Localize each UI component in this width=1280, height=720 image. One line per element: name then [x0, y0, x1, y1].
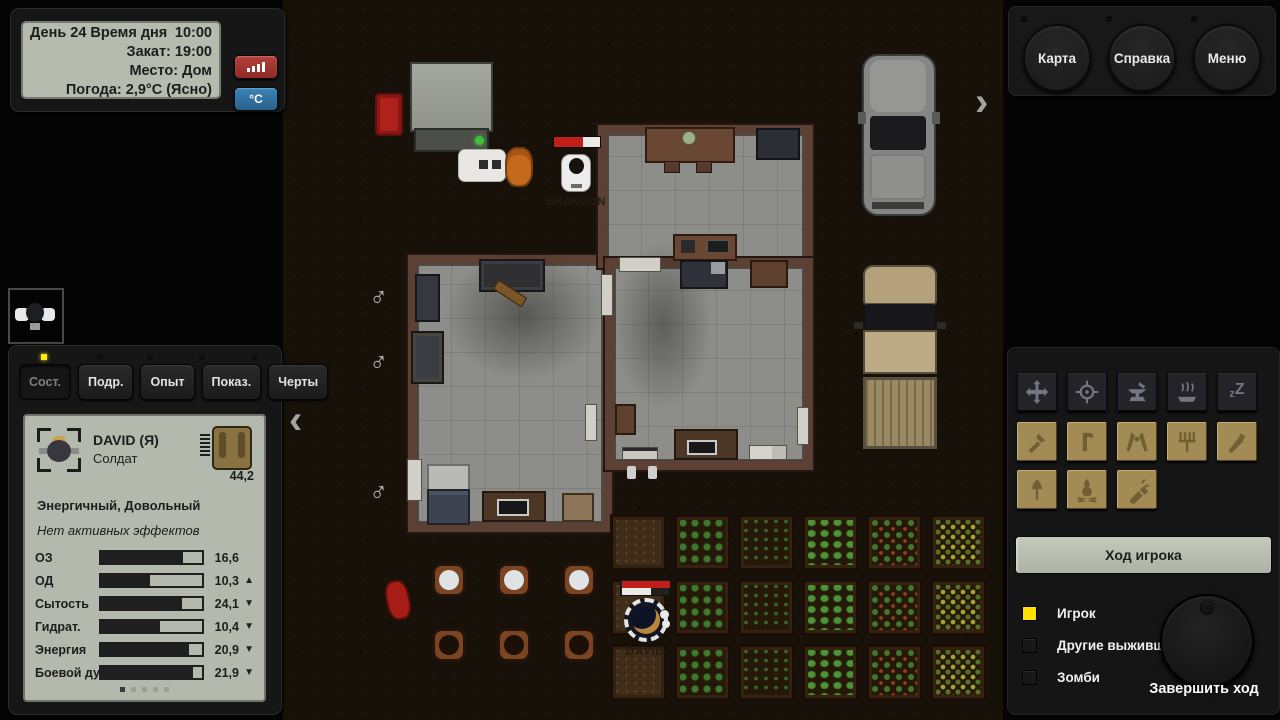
crosshair-icon [1073, 378, 1101, 406]
mood-text: Энергичный, Довольный [37, 498, 254, 513]
portrait-sprite [47, 440, 71, 462]
page-dots[interactable] [25, 687, 264, 692]
character-portrait[interactable] [37, 428, 81, 472]
pan-left-arrow[interactable]: ‹ [289, 402, 302, 438]
panel-cell [492, 160, 501, 169]
crop-plot-dirt[interactable] [610, 514, 667, 571]
sprite-part [26, 303, 44, 322]
pot-watered[interactable] [562, 563, 596, 597]
crop-plot-berry[interactable] [866, 644, 923, 701]
chair[interactable] [696, 161, 712, 173]
legend-player: Игрок [1022, 606, 1096, 621]
end-turn-dial[interactable] [1160, 594, 1254, 688]
signal-bars-icon [247, 62, 265, 72]
effects-text: Нет активных эффектов [37, 523, 254, 538]
menu-indicator [1106, 16, 1112, 22]
crop-plot-bush[interactable] [674, 514, 731, 571]
tab-indicators[interactable]: Показ. [202, 364, 262, 400]
celsius-label: °C [249, 92, 262, 106]
pot-empty[interactable] [432, 628, 466, 662]
male-symbol[interactable]: ♂ [367, 476, 391, 509]
tab-experience[interactable]: Опыт [140, 364, 194, 400]
character-role: Солдат [93, 451, 159, 466]
crop-plot-bush[interactable] [674, 579, 731, 636]
crop-plot-leafy[interactable] [802, 644, 859, 701]
action-panel: zZ [1007, 347, 1280, 715]
pliers-icon [1123, 428, 1151, 456]
sink[interactable] [749, 445, 787, 460]
signal-button[interactable] [234, 55, 278, 79]
counter-item [707, 240, 729, 253]
menu-indicator [1021, 16, 1027, 22]
pitchfork-button[interactable] [1167, 422, 1207, 461]
forge-button[interactable] [1117, 372, 1157, 411]
stat-row-hydration: Гидрат. 10,4 ▼ [35, 615, 254, 638]
door[interactable] [601, 274, 613, 316]
male-symbol[interactable]: ♂ [367, 346, 391, 379]
weight-ticks [200, 434, 210, 456]
crop-plot-corn[interactable] [930, 514, 987, 571]
crop-plot-berry[interactable] [866, 579, 923, 636]
generator[interactable] [410, 62, 493, 132]
knife-button[interactable] [1217, 422, 1257, 461]
chair[interactable] [664, 161, 680, 173]
character-name: DAVID (Я) [93, 432, 159, 448]
panel-cell [479, 160, 488, 169]
portrait-sprite [71, 448, 79, 454]
help-button[interactable]: Справка [1108, 24, 1176, 92]
generator-light [475, 136, 484, 145]
brandon-name-label: BRANDON [541, 196, 611, 208]
tab-indicator [97, 354, 103, 360]
faucet[interactable] [627, 466, 636, 479]
weather-label: Погода: 2,9°C (Ясно) [30, 81, 212, 100]
bench[interactable] [622, 447, 658, 460]
bed-pillow[interactable] [427, 464, 470, 491]
legend-survivors: Другие выжившие [1022, 638, 1180, 653]
axe-icon [1023, 428, 1051, 456]
cook-button[interactable] [1167, 372, 1207, 411]
pliers-button[interactable] [1117, 422, 1157, 461]
fridge[interactable] [756, 128, 800, 160]
david-health-bar [620, 579, 670, 596]
shovel-icon [1023, 476, 1051, 504]
bed[interactable] [427, 489, 470, 525]
crop-plot-corn[interactable] [930, 644, 987, 701]
crowbar-icon [1073, 428, 1101, 456]
temperature-button[interactable]: °C [234, 87, 278, 111]
flashlight-button[interactable] [1117, 470, 1157, 509]
armchair[interactable] [750, 260, 788, 288]
tab-state[interactable]: Сост. [19, 364, 71, 400]
game-screen: ♂ ♂ ♂ [0, 0, 1280, 720]
survivors-color-swatch [1022, 638, 1037, 653]
pan-right-arrow[interactable]: › [975, 84, 988, 120]
sleep-zz-icon: zZ [1229, 382, 1244, 401]
player-color-swatch [1022, 606, 1037, 621]
shovel-button[interactable] [1017, 470, 1057, 509]
animal-fox[interactable] [505, 147, 533, 187]
crop-plot-sprout[interactable] [738, 579, 795, 636]
sleep-button[interactable]: zZ [1217, 372, 1257, 411]
map-button[interactable]: Карта [1023, 24, 1091, 92]
tab-traits[interactable]: Черты [268, 364, 328, 400]
clock-value: 10:00 [175, 24, 212, 43]
cabinet[interactable] [615, 404, 636, 435]
counter-item [681, 240, 695, 253]
door[interactable] [585, 404, 597, 441]
turn-status-bar: Ход игрока [1015, 536, 1272, 574]
portrait-sprite [39, 448, 47, 454]
wardrobe[interactable] [411, 331, 444, 384]
sprite-part [30, 323, 40, 330]
world-map[interactable]: ♂ ♂ ♂ [283, 0, 1003, 720]
legend-zombies: Зомби [1022, 670, 1100, 685]
backpack-icon[interactable] [212, 426, 252, 470]
stat-row-morale: Боевой дух 21,9 ▼ [35, 661, 254, 684]
place-label: Место: Дом [30, 62, 212, 81]
stat-row-ap: ОД 10,3 ▲ [35, 569, 254, 592]
status-panel: День 24 Время дня 10:00 Закат: 19:00 Мес… [10, 8, 285, 112]
campfire-icon [1073, 476, 1101, 504]
end-turn-label[interactable]: Завершить ход [1124, 681, 1280, 697]
pot-empty[interactable] [562, 628, 596, 662]
tab-details[interactable]: Подр. [78, 364, 134, 400]
menu-indicator [1191, 16, 1197, 22]
crop-plot-sprout[interactable] [738, 644, 795, 701]
sunset-label: Закат: 19:00 [30, 43, 212, 62]
pot-empty[interactable] [497, 628, 531, 662]
move-button[interactable] [1017, 372, 1057, 411]
knife-icon [1223, 428, 1251, 456]
male-symbol[interactable]: ♂ [367, 281, 391, 314]
stat-row-energy: Энергия 20,9 ▼ [35, 638, 254, 661]
survivor-thumbnail-button[interactable] [8, 288, 64, 344]
pot-watered[interactable] [432, 563, 466, 597]
vehicle-pickup[interactable] [859, 262, 941, 452]
pot-watered[interactable] [497, 563, 531, 597]
cooking-icon [1173, 378, 1201, 406]
dresser[interactable] [562, 493, 594, 522]
crop-plot-sprout[interactable] [738, 514, 795, 571]
plant-on-table [682, 131, 696, 145]
character-panel: Сост. Подр. Опыт Показ. Черты DAVID (Я) … [8, 345, 282, 715]
axe-button[interactable] [1017, 422, 1057, 461]
oven-door [497, 499, 529, 516]
dresser-top-item [711, 262, 725, 274]
crop-plot-bush[interactable] [674, 644, 731, 701]
survivor-david[interactable] [624, 598, 668, 642]
tab-indicator [41, 354, 47, 360]
tab-indicator [252, 354, 258, 360]
survivor-brandon[interactable] [561, 150, 591, 194]
gas-can[interactable] [375, 93, 403, 136]
door[interactable] [797, 407, 809, 445]
door[interactable] [619, 257, 661, 272]
menu-panel: Карта Справка Меню [1008, 6, 1276, 96]
anvil-icon [1123, 378, 1151, 406]
crowbar-button[interactable] [1067, 422, 1107, 461]
animal-rooster[interactable] [382, 578, 414, 622]
zombies-color-swatch [1022, 670, 1037, 685]
crop-plot-berry[interactable] [866, 514, 923, 571]
target-button[interactable] [1067, 372, 1107, 411]
tab-indicator [199, 354, 205, 360]
david-name-label: DAVID [614, 644, 676, 658]
door[interactable] [407, 459, 422, 501]
sofa[interactable] [479, 259, 545, 292]
stat-row-satiety: Сытость 24,1 ▼ [35, 592, 254, 615]
move-arrows-icon [1023, 378, 1051, 406]
status-lcd: День 24 Время дня 10:00 Закат: 19:00 Мес… [21, 21, 221, 99]
crop-plot-leafy[interactable] [802, 579, 859, 636]
crop-plot-corn[interactable] [930, 579, 987, 636]
day-time-label: День 24 Время дня [30, 24, 167, 43]
carry-weight: 44,2 [230, 469, 254, 483]
character-lcd: DAVID (Я) Солдат 44,2 Энергичный, Доволь… [23, 414, 266, 702]
oven-door [687, 440, 717, 455]
stat-row-hp: ОЗ 16,6 [35, 546, 254, 569]
tab-indicator [147, 354, 153, 360]
cabinet[interactable] [415, 274, 440, 322]
pitchfork-icon [1173, 428, 1201, 456]
vehicle-suv[interactable] [862, 54, 936, 216]
campfire-button[interactable] [1067, 470, 1107, 509]
flashlight-icon [1123, 476, 1151, 504]
crop-plot-leafy[interactable] [802, 514, 859, 571]
faucet[interactable] [648, 466, 657, 479]
dial-notch [1200, 601, 1214, 615]
brandon-health-bar [553, 136, 601, 148]
menu-button[interactable]: Меню [1193, 24, 1261, 92]
